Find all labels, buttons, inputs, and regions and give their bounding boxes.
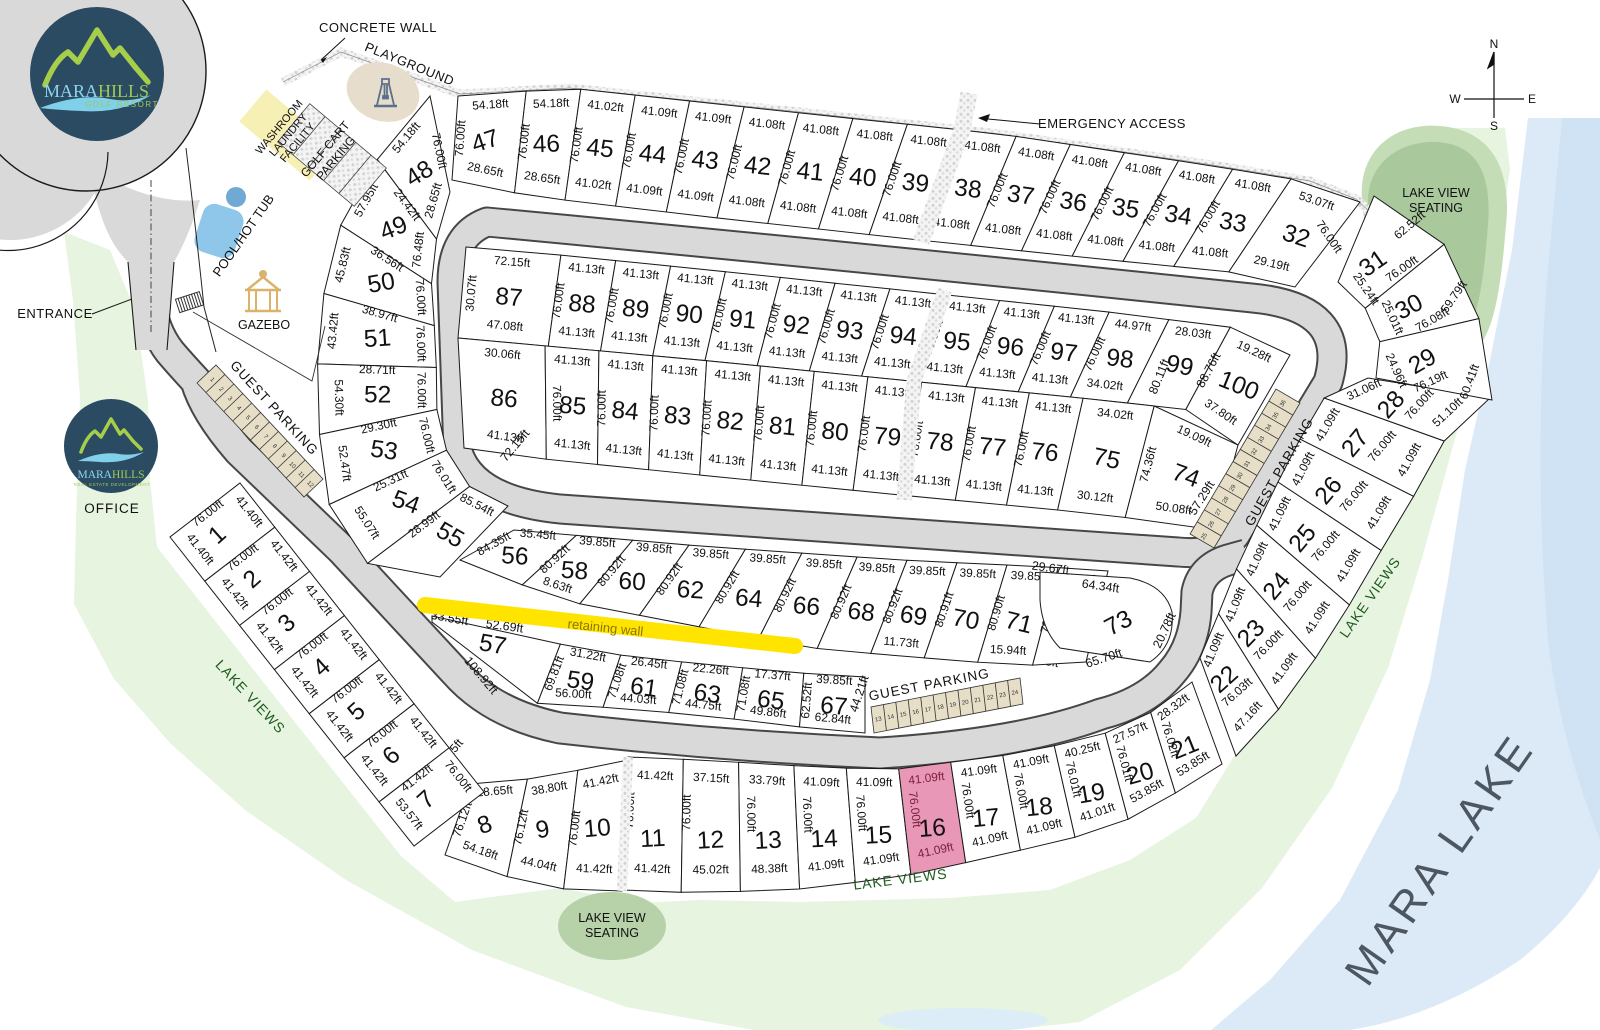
svg-text:89: 89: [621, 295, 651, 325]
svg-text:CONCRETE WALL: CONCRETE WALL: [319, 20, 437, 35]
svg-text:11: 11: [639, 825, 666, 853]
svg-text:69: 69: [898, 601, 929, 632]
svg-text:98: 98: [1105, 344, 1135, 374]
svg-text:36: 36: [1058, 187, 1089, 218]
svg-text:GOLF RESORT: GOLF RESORT: [85, 100, 159, 109]
svg-text:77: 77: [978, 433, 1008, 463]
svg-text:76.00ft: 76.00ft: [744, 796, 759, 833]
svg-text:91: 91: [728, 305, 758, 335]
svg-text:75: 75: [1090, 443, 1122, 475]
svg-text:10: 10: [582, 814, 612, 843]
svg-text:52: 52: [364, 381, 391, 408]
svg-text:54.18ft: 54.18ft: [533, 96, 571, 111]
svg-text:87: 87: [494, 283, 523, 312]
svg-text:40: 40: [848, 163, 878, 193]
svg-text:88: 88: [567, 290, 597, 320]
svg-text:83: 83: [663, 402, 693, 431]
svg-text:N: N: [1490, 37, 1499, 51]
svg-text:41.42ft: 41.42ft: [637, 768, 675, 784]
svg-text:45: 45: [585, 134, 615, 164]
svg-text:43: 43: [690, 146, 720, 176]
svg-text:76.00ft: 76.00ft: [413, 279, 429, 317]
svg-text:44.03ft: 44.03ft: [620, 690, 658, 707]
svg-text:46: 46: [532, 130, 560, 158]
svg-text:34: 34: [1163, 200, 1194, 231]
svg-text:GAZEBO: GAZEBO: [238, 318, 290, 332]
svg-text:42: 42: [743, 151, 773, 181]
svg-text:39.85ft: 39.85ft: [816, 672, 854, 688]
svg-text:W: W: [1449, 92, 1461, 106]
svg-text:79: 79: [873, 422, 903, 452]
svg-text:56.00ft: 56.00ft: [555, 685, 593, 701]
svg-text:37: 37: [1005, 180, 1036, 211]
svg-text:54.18ft: 54.18ft: [472, 96, 510, 113]
svg-text:REAL ESTATE DEVELOPMENT: REAL ESTATE DEVELOPMENT: [74, 482, 150, 487]
svg-text:HILLS: HILLS: [112, 469, 145, 481]
svg-text:MARA: MARA: [44, 81, 98, 101]
svg-text:44: 44: [637, 140, 667, 170]
svg-text:76.00ft: 76.00ft: [853, 794, 870, 832]
svg-text:LAKE VIEW: LAKE VIEW: [578, 911, 646, 925]
svg-text:76.00ft: 76.00ft: [646, 394, 661, 432]
svg-text:62: 62: [676, 576, 705, 605]
svg-text:62.52ft: 62.52ft: [798, 681, 815, 719]
svg-text:39.85ft: 39.85ft: [692, 545, 730, 562]
svg-text:56: 56: [500, 542, 529, 571]
svg-text:37.15ft: 37.15ft: [693, 770, 731, 786]
svg-text:78: 78: [925, 428, 955, 458]
svg-text:41.09ft: 41.09ft: [856, 775, 893, 790]
svg-text:93: 93: [835, 316, 865, 346]
svg-text:39.85ft: 39.85ft: [749, 550, 787, 567]
svg-text:60: 60: [618, 568, 647, 597]
svg-text:38: 38: [953, 174, 983, 204]
svg-text:66: 66: [792, 592, 822, 621]
svg-text:76: 76: [1030, 438, 1060, 468]
svg-text:76.00ft: 76.00ft: [800, 796, 816, 834]
svg-text:OFFICE: OFFICE: [84, 501, 140, 516]
svg-text:HILLS: HILLS: [98, 81, 149, 101]
svg-text:51: 51: [363, 324, 392, 353]
svg-text:41: 41: [795, 157, 825, 187]
svg-text:S: S: [1490, 119, 1498, 133]
svg-text:50: 50: [366, 268, 398, 299]
svg-text:94: 94: [888, 322, 918, 352]
svg-text:64: 64: [734, 584, 764, 613]
svg-text:45.02ft: 45.02ft: [692, 862, 729, 877]
svg-text:39: 39: [900, 168, 930, 198]
svg-text:76.00ft: 76.00ft: [698, 399, 714, 437]
svg-text:53: 53: [369, 436, 400, 467]
svg-text:76.00ft: 76.00ft: [413, 325, 429, 363]
svg-text:84: 84: [610, 397, 640, 426]
svg-text:39.85ft: 39.85ft: [959, 565, 997, 581]
svg-text:97: 97: [1049, 338, 1079, 368]
svg-text:76.00ft: 76.00ft: [550, 385, 564, 422]
svg-text:EMERGENCY ACCESS: EMERGENCY ACCESS: [1038, 116, 1186, 131]
svg-text:80: 80: [820, 417, 850, 447]
svg-text:33: 33: [1217, 207, 1248, 238]
svg-text:76.00ft: 76.00ft: [414, 372, 429, 409]
svg-text:28.71ft: 28.71ft: [359, 362, 396, 377]
svg-text:57: 57: [477, 629, 509, 660]
svg-text:35: 35: [1110, 194, 1141, 225]
svg-text:86: 86: [489, 384, 519, 413]
svg-text:ENTRANCE: ENTRANCE: [17, 306, 93, 321]
svg-text:76.00ft: 76.00ft: [594, 389, 608, 426]
svg-text:92: 92: [781, 311, 811, 341]
svg-text:96: 96: [995, 332, 1025, 362]
svg-text:76.00ft: 76.00ft: [679, 794, 694, 831]
svg-text:SEATING: SEATING: [585, 926, 639, 940]
svg-text:SEATING: SEATING: [1409, 201, 1463, 215]
svg-text:81: 81: [768, 412, 798, 442]
svg-text:LAKE VIEW: LAKE VIEW: [1402, 186, 1470, 200]
svg-text:39.85ft: 39.85ft: [805, 555, 843, 572]
svg-text:70: 70: [950, 604, 982, 636]
svg-text:48.38ft: 48.38ft: [751, 861, 789, 876]
svg-text:41.09ft: 41.09ft: [803, 774, 841, 790]
svg-text:95: 95: [942, 327, 972, 357]
svg-text:MARA: MARA: [77, 469, 112, 481]
svg-text:41.42ft: 41.42ft: [576, 861, 614, 876]
svg-text:12: 12: [696, 826, 725, 854]
svg-text:39.85ft: 39.85ft: [909, 563, 947, 579]
svg-text:68: 68: [846, 597, 876, 627]
svg-text:82: 82: [715, 407, 745, 437]
svg-text:76.00ft: 76.00ft: [452, 119, 469, 157]
svg-text:33.79ft: 33.79ft: [749, 772, 787, 788]
svg-text:41.42ft: 41.42ft: [634, 861, 672, 876]
svg-text:E: E: [1528, 92, 1536, 106]
svg-text:90: 90: [674, 300, 704, 330]
svg-text:15.94ft: 15.94ft: [990, 642, 1028, 658]
svg-text:54.30ft: 54.30ft: [332, 379, 347, 416]
svg-text:39.85ft: 39.85ft: [858, 559, 896, 575]
